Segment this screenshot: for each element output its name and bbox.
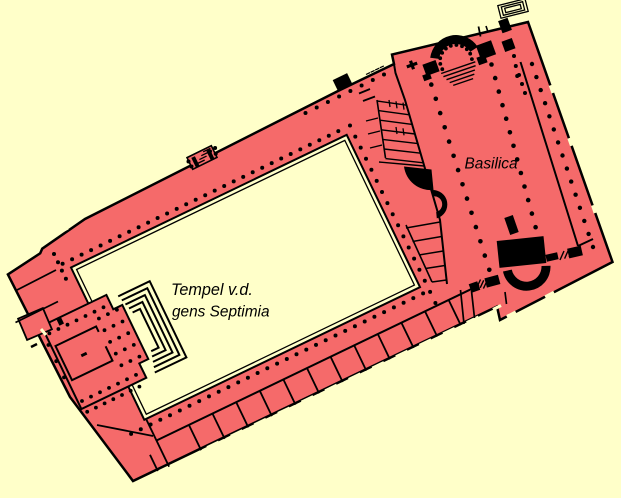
svg-text:Tempel v.d.: Tempel v.d. (171, 281, 253, 299)
svg-text:gens Septimia: gens Septimia (172, 304, 270, 321)
svg-text:Basilica: Basilica (465, 156, 518, 173)
